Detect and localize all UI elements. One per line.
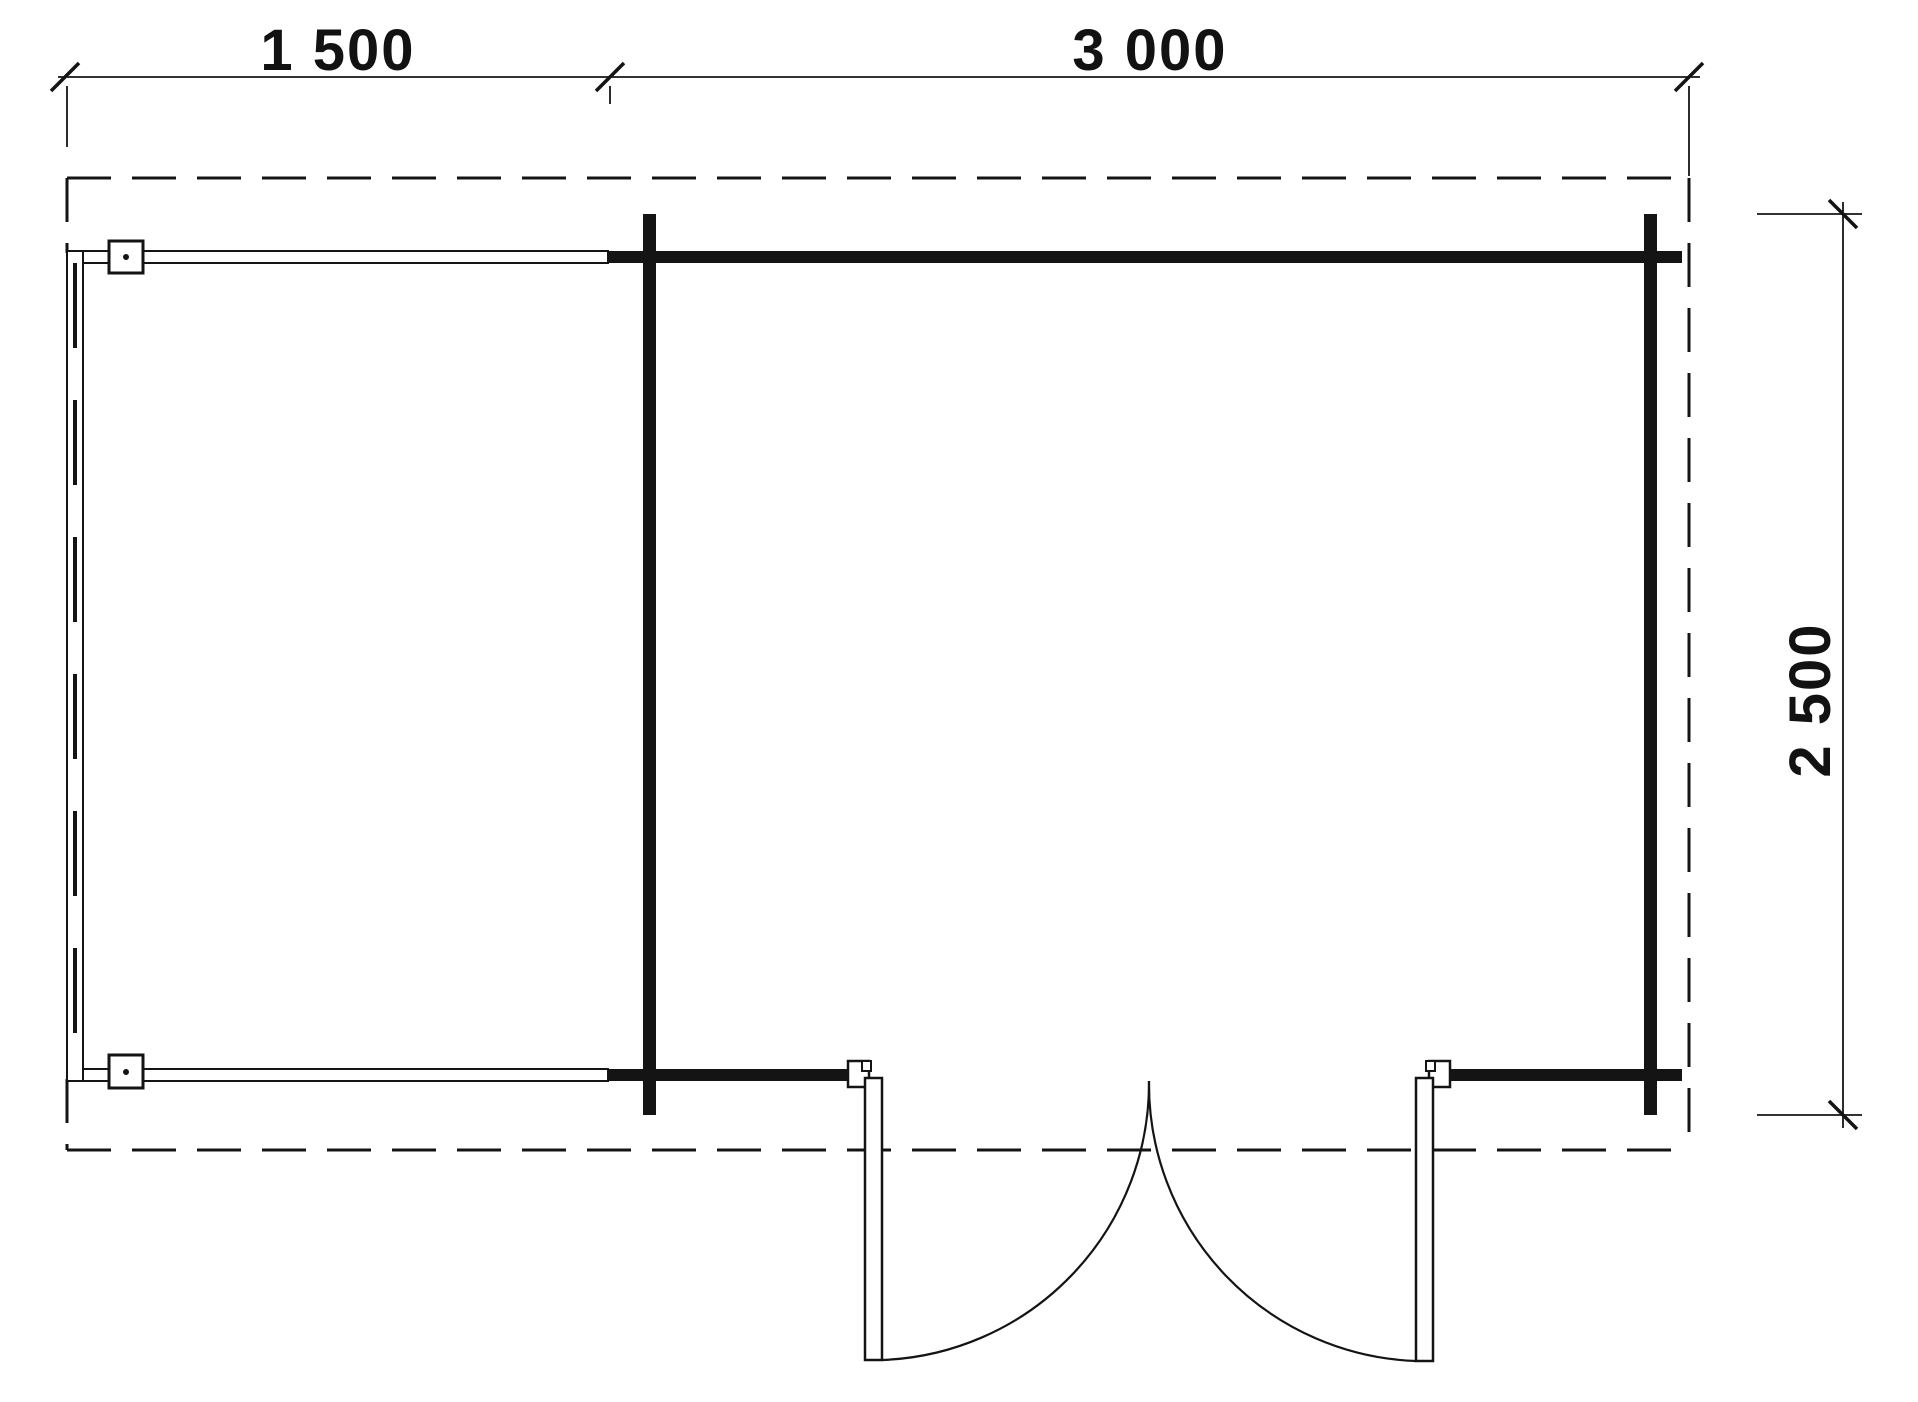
cabin-wall-left <box>643 214 656 1115</box>
cabin-wall-top <box>607 251 1682 263</box>
roof-overhang-outline <box>67 178 1689 1150</box>
door-swing-arc-right <box>1149 1081 1416 1361</box>
dimension-label-cabin-depth: 2 500 <box>1778 622 1843 777</box>
terrace-wall-bottom <box>67 1069 608 1081</box>
floor-plan-drawing: 1 500 3 000 2 500 <box>0 0 1918 1402</box>
cabin-wall-bottom-right-segment <box>1443 1069 1682 1081</box>
double-door <box>848 1061 1450 1361</box>
dimension-label-terrace-width: 1 500 <box>260 18 415 83</box>
cabin-wall-bottom-left-segment <box>607 1069 850 1081</box>
terrace-posts <box>109 241 143 1088</box>
terrace-post-bottom-center-dot <box>123 1069 129 1075</box>
door-jamb-left-notch <box>862 1061 871 1071</box>
cabin-walls <box>607 214 1682 1115</box>
floor-plan-canvas: 1 500 3 000 2 500 <box>0 0 1918 1402</box>
dimension-label-cabin-width: 3 000 <box>1072 18 1227 83</box>
terrace-post-top-center-dot <box>123 254 129 260</box>
door-leaf-left <box>865 1078 882 1360</box>
terrace-walls <box>67 251 608 1081</box>
top-dimension-line-group <box>58 77 1700 176</box>
door-jamb-right-notch <box>1426 1061 1435 1071</box>
door-swing-arc-left <box>882 1081 1149 1360</box>
terrace-wall-top <box>67 251 608 263</box>
door-leaf-right <box>1416 1078 1433 1361</box>
cabin-wall-right <box>1644 214 1657 1115</box>
